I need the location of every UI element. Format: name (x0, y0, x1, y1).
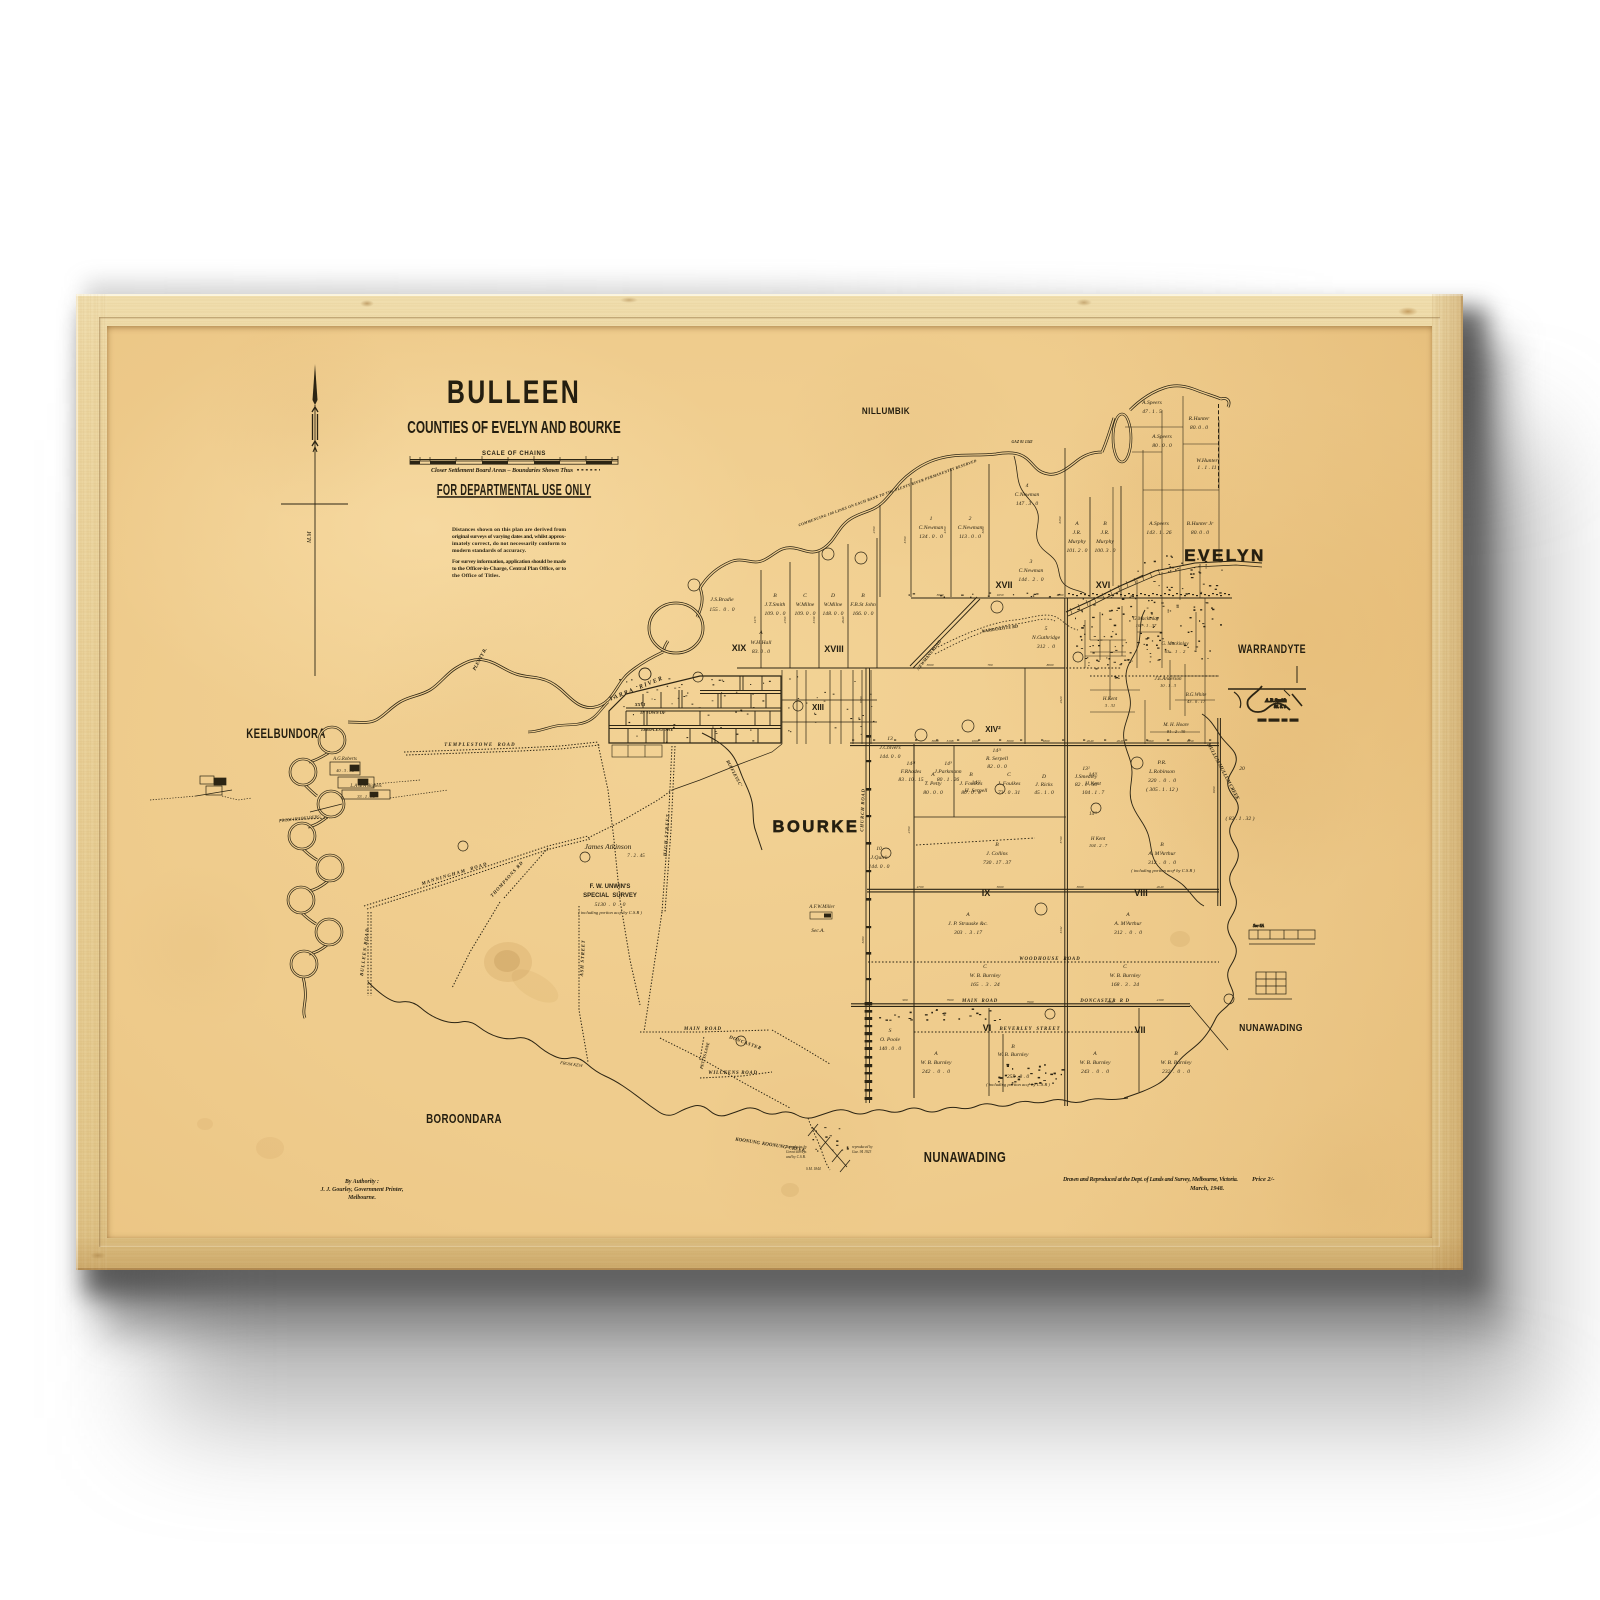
svg-text:3000: 3000 (937, 593, 944, 597)
svg-text:1650: 1650 (1212, 786, 1216, 793)
svg-text:XIV²: XIV² (985, 725, 1001, 734)
svg-text:DONCASTER R D: DONCASTER R D (1079, 999, 1130, 1004)
svg-text:700: 700 (987, 663, 992, 667)
svg-text:144. 0 . 0: 144. 0 . 0 (880, 754, 901, 760)
svg-text:A.Speers: A.Speers (1148, 521, 1169, 527)
svg-text:3000: 3000 (1007, 739, 1014, 743)
svg-text:1650: 1650 (997, 593, 1004, 597)
svg-text:144 . 2 . 0: 144 . 2 . 0 (1018, 577, 1043, 583)
svg-text:109. 0 . 0: 109. 0 . 0 (765, 611, 786, 617)
svg-text:to the Officer-in-Charge, Cent: to the Officer-in-Charge, Central Plan O… (452, 566, 566, 572)
svg-text:143 . 1 . 26: 143 . 1 . 26 (1146, 530, 1171, 536)
svg-text:( including portion acqⁿ by C.: ( including portion acqⁿ by C.S.B ) (578, 910, 642, 915)
svg-text:W.Milne: W.Milne (824, 602, 843, 608)
svg-text:148. 0 . 0: 148. 0 . 0 (823, 611, 844, 617)
svg-text:82 . 0 . 0: 82 . 0 . 0 (987, 764, 1007, 770)
svg-text:47 . 1 . 5: 47 . 1 . 5 (1142, 409, 1162, 415)
svg-text:7900: 7900 (1027, 1000, 1034, 1004)
svg-text:3198: 3198 (947, 739, 954, 743)
svg-text:Sec 6A: Sec 6A (1253, 923, 1265, 928)
svg-text:312 . 0 . 0: 312 . 0 . 0 (1147, 860, 1176, 866)
svg-text:168 . 3 . 24: 168 . 3 . 24 (1111, 982, 1139, 988)
svg-text:S.M. 1844: S.M. 1844 (806, 1167, 821, 1171)
svg-text:J.R.: J.R. (1073, 530, 1082, 536)
svg-text:104 . 1 . 7: 104 . 1 . 7 (1082, 790, 1105, 796)
svg-text:MAIN ROAD: MAIN ROAD (961, 999, 998, 1004)
svg-text:Closer Settlement Board Areas: Closer Settlement Board Areas – Boundari… (431, 467, 574, 474)
svg-text:Gaz. 94 1923: Gaz. 94 1923 (852, 1150, 871, 1154)
svg-text:BOROONDARA: BOROONDARA (426, 1113, 502, 1127)
svg-text:63 . 1 . 2: 63 . 1 . 2 (1165, 649, 1186, 654)
svg-text:MANNINGHAM ROAD: MANNINGHAM ROAD (420, 862, 488, 887)
svg-text:B: B (1174, 1051, 1178, 1057)
svg-text:C.Newman: C.Newman (958, 525, 983, 531)
svg-text:IX: IX (982, 888, 991, 898)
svg-text:WOODHOUSE ROAD: WOODHOUSE ROAD (1019, 957, 1080, 962)
svg-text:For survey information, applic: For survey information, application shou… (452, 559, 567, 565)
svg-text:7 . 2 . 45: 7 . 2 . 45 (627, 854, 645, 859)
svg-text:O. Poole: O. Poole (880, 1037, 900, 1043)
svg-text:reproduced by: reproduced by (852, 1145, 873, 1149)
svg-text:B.Hunter Jr: B.Hunter Jr (1187, 521, 1215, 527)
svg-text:FOR DEPARTMENTAL USE ONLY: FOR DEPARTMENTAL USE ONLY (437, 480, 591, 498)
svg-text:the Office of Titles.: the Office of Titles. (452, 573, 501, 579)
svg-text:WARRANDYTE RD: WARRANDYTE RD (981, 623, 1019, 633)
svg-text:80. 0. 0: 80. 0. 0 (1274, 704, 1286, 709)
svg-text:109. 0 . 0: 109. 0 . 0 (795, 611, 816, 617)
svg-text:COUNTIES OF EVELYN AND BOURKE: COUNTIES OF EVELYN AND BOURKE (407, 418, 620, 438)
svg-text:A: A (933, 1051, 938, 1057)
svg-text:2640: 2640 (1117, 739, 1124, 743)
svg-text:101. 2 . 0: 101. 2 . 0 (1067, 548, 1088, 554)
svg-text:A: A (1074, 521, 1079, 527)
svg-text:1800: 1800 (1043, 739, 1050, 743)
svg-text:83 . 10 . 15: 83 . 10 . 15 (898, 777, 923, 783)
svg-text:5: 5 (1045, 626, 1048, 632)
svg-text:W. B. Burnley: W. B. Burnley (1161, 1060, 1192, 1066)
svg-text:N.Guthridge: N.Guthridge (1031, 635, 1061, 641)
svg-text:80. 0 . 0: 80. 0 . 0 (1191, 530, 1209, 536)
svg-text:B: B (1011, 1044, 1015, 1050)
svg-text:modern standards of accuracy.: modern standards of accuracy. (452, 548, 527, 554)
svg-text:320 . 0 . 0: 320 . 0 . 0 (1147, 778, 1176, 784)
svg-text:A. M⁽Arthur: A. M⁽Arthur (1113, 920, 1142, 927)
svg-text:J.R.: J.R. (1101, 530, 1110, 536)
svg-text:312 . 0: 312 . 0 (1036, 644, 1055, 650)
svg-text:SCALE OF CHAINS: SCALE OF CHAINS (482, 451, 546, 457)
svg-text:J.Parkmann: J.Parkmann (934, 769, 961, 775)
svg-text:8000: 8000 (1047, 663, 1054, 667)
svg-text:J.S.Bradie: J.S.Bradie (710, 597, 734, 603)
svg-text:W. B. Burnley: W. B. Burnley (1110, 973, 1141, 979)
svg-text:73 . 0 . 31: 73 . 0 . 31 (998, 790, 1021, 796)
svg-text:43 . 0 . 17: 43 . 0 . 17 (1187, 699, 1206, 704)
svg-text:2640: 2640 (841, 616, 845, 623)
svg-text:Drawn and Reproduced at the De: Drawn and Reproduced at the Dept. of Lan… (1062, 1177, 1239, 1183)
svg-text:FROM HEIDELBERG: FROM HEIDELBERG (278, 814, 322, 824)
svg-text:5280: 5280 (861, 936, 865, 943)
svg-text:TEMPLESTOWE: TEMPLESTOWE (641, 727, 674, 732)
svg-text:( 305 . 1 . 12 ): ( 305 . 1 . 12 ) (1146, 786, 1178, 793)
svg-text:W.Milne: W.Milne (796, 602, 815, 608)
svg-text:F.B.St John: F.B.St John (849, 602, 876, 608)
svg-text:232 . 0 . 0: 232 . 0 . 0 (1162, 1069, 1190, 1075)
svg-text:F. W. UNWIN'S: F. W. UNWIN'S (590, 884, 631, 890)
svg-text:F.Rhodes: F.Rhodes (900, 769, 922, 775)
svg-text:KEELBUNDORA: KEELBUNDORA (246, 727, 326, 742)
svg-text:3: 3 (1029, 559, 1033, 565)
svg-text:C: C (1007, 772, 1011, 778)
svg-text:J. Collins: J. Collins (986, 851, 1007, 857)
svg-text:1 . 1 . 11: 1 . 1 . 11 (1197, 465, 1216, 471)
svg-text:M.M: M.M (307, 531, 313, 544)
svg-text:Murphy: Murphy (1095, 539, 1114, 545)
svg-text:J.T.Smith: J.T.Smith (765, 602, 786, 608)
svg-text:L.Robinson: L.Robinson (1148, 769, 1175, 775)
svg-text:Price 2/-: Price 2/- (1252, 1176, 1275, 1183)
svg-text:82 . 1 . 30: 82 . 1 . 30 (1075, 782, 1098, 788)
svg-text:243 . 0 . 0: 243 . 0 . 0 (1081, 1069, 1109, 1075)
svg-text:3000: 3000 (927, 663, 934, 667)
svg-text:WARRANDYTE: WARRANDYTE (1238, 644, 1306, 656)
svg-text:BULLEEN ROAD: BULLEEN ROAD (360, 927, 371, 977)
svg-text:Distances shown on this plan a: Distances shown on this plan are derived… (452, 527, 566, 533)
svg-text:W.Hunter: W.Hunter (1196, 458, 1218, 464)
svg-text:and by C.S.B.: and by C.S.B. (786, 1155, 806, 1159)
svg-text:B: B (1103, 521, 1107, 527)
svg-text:80. 0 . 0: 80. 0 . 0 (1190, 425, 1208, 431)
svg-text:165 . 3 . 24: 165 . 3 . 24 (970, 982, 1000, 988)
svg-text:166. 0 . 0: 166. 0 . 0 (853, 611, 874, 617)
svg-text:J. J. Gourley, Government Prin: J. J. Gourley, Government Printer, (320, 1187, 404, 1193)
svg-text:A: A (1092, 1051, 1097, 1057)
svg-text:W. B. Burnley: W. B. Burnley (1080, 1060, 1111, 1066)
svg-text:45 . 1 . 0: 45 . 1 . 0 (1034, 790, 1054, 796)
svg-text:XIX: XIX (732, 643, 747, 653)
svg-text:MAIN ROAD: MAIN ROAD (683, 1027, 722, 1032)
svg-text:XVIII: XVIII (824, 644, 844, 654)
svg-text:2640: 2640 (1087, 739, 1094, 743)
svg-text:B.G.White: B.G.White (1186, 693, 1208, 698)
svg-text:2153: 2153 (783, 616, 787, 623)
svg-text:1: 1 (930, 516, 933, 522)
svg-text:33 . 1 . 30: 33 . 1 . 30 (357, 794, 375, 799)
svg-text:80 . 1 . 26: 80 . 1 . 26 (937, 777, 960, 783)
svg-text:HIGH STREET: HIGH STREET (663, 813, 671, 857)
svg-text:C.Newman: C.Newman (1019, 568, 1044, 574)
svg-text:G. Mackinlay: G. Mackinlay (1161, 642, 1189, 647)
svg-text:H Kent: H Kent (1090, 837, 1106, 842)
svg-text:imately correct, do not necess: imately correct, do not necessarily conf… (452, 541, 566, 547)
svg-text:P.R.: P.R. (1157, 760, 1167, 766)
svg-text:3000: 3000 (1077, 885, 1084, 889)
svg-text:5130 . 0 . 0: 5130 . 0 . 0 (595, 902, 626, 908)
svg-text:10 . 1 . 3: 10 . 1 . 3 (1160, 683, 1177, 688)
svg-text:A.F.W.Miller: A.F.W.Miller (808, 905, 834, 910)
svg-text:J.E.Anderson: J.E.Anderson (1155, 677, 1182, 682)
svg-text:100. 3 . 0: 100. 3 . 0 (1095, 548, 1116, 554)
svg-text:3 . 31: 3 . 31 (1105, 703, 1115, 708)
svg-text:IN TOWN OF: IN TOWN OF (639, 710, 666, 715)
svg-text:81 . 2 . 30: 81 . 2 . 30 (1167, 729, 1186, 734)
svg-text:312 . 0 . 0: 312 . 0 . 0 (1113, 930, 1142, 936)
svg-text:5280: 5280 (981, 526, 985, 533)
svg-text:W.H.Hall: W.H.Hall (751, 640, 772, 646)
svg-text:FROM KEW: FROM KEW (559, 1060, 583, 1068)
svg-text:BULLEEN: BULLEEN (447, 375, 581, 411)
svg-text:original surveys of varying da: original surveys of varying dates and, w… (452, 534, 566, 540)
svg-text:14²¹: 14²¹ (993, 748, 1002, 754)
svg-text:Melbourne.: Melbourne. (347, 1195, 376, 1201)
svg-text:VII: VII (1134, 1025, 1145, 1035)
svg-text:By Authority :: By Authority : (344, 1179, 379, 1185)
svg-text:40 . 3 . 36: 40 . 3 . 36 (336, 768, 354, 773)
svg-text:14²²: 14²² (972, 780, 981, 786)
svg-text:NILLUMBIK: NILLUMBIK (862, 405, 910, 416)
svg-text:J.Smedley: J.Smedley (1075, 774, 1098, 780)
svg-text:L.A & A Bighels: L.A & A Bighels (349, 784, 381, 789)
svg-text:VIII: VIII (1134, 888, 1148, 898)
svg-text:A: A (758, 630, 763, 636)
svg-text:H.Kent: H.Kent (1102, 697, 1118, 702)
svg-text:B: B (995, 842, 999, 848)
svg-text:2640: 2640 (1157, 885, 1164, 889)
svg-text:2100: 2100 (1157, 998, 1164, 1002)
svg-text:D: D (830, 593, 835, 599)
svg-text:900: 900 (902, 998, 907, 1002)
svg-text:J. Ricks: J. Ricks (1035, 782, 1052, 788)
svg-text:Sec.A.: Sec.A. (811, 928, 824, 934)
svg-text:B: B (1160, 842, 1164, 848)
svg-text:BEVERLEY STREET: BEVERLEY STREET (998, 1027, 1060, 1032)
svg-text:1473: 1473 (753, 616, 757, 623)
svg-text:J. P. Strauske &c.: J. P. Strauske &c. (948, 921, 988, 927)
svg-text:A.G.Roberts: A.G.Roberts (332, 757, 357, 762)
svg-text:XXVI: XXVI (634, 702, 646, 707)
svg-text:5000: 5000 (997, 885, 1004, 889)
svg-text:242 . 0 . 0: 242 . 0 . 0 (922, 1069, 950, 1075)
svg-text:1650: 1650 (859, 696, 863, 703)
svg-text:2320: 2320 (1059, 696, 1063, 703)
svg-text:W. B. Burnley: W. B. Burnley (970, 973, 1001, 979)
svg-text:C.Newman: C.Newman (1015, 492, 1040, 498)
svg-text:80 . 0 . 0: 80 . 0 . 0 (923, 790, 943, 796)
svg-text:James Atkinson: James Atkinson (585, 842, 632, 851)
svg-text:NUNAWADING: NUNAWADING (1239, 1022, 1303, 1034)
svg-text:2150: 2150 (907, 826, 911, 833)
svg-text:113 . 0 . 0: 113 . 0 . 0 (959, 534, 981, 540)
svg-text:C: C (983, 964, 987, 970)
svg-text:BOURKE: BOURKE (772, 818, 859, 836)
svg-text:XVII: XVII (995, 580, 1012, 590)
svg-text:A: A (965, 912, 970, 918)
svg-text:2: 2 (969, 516, 972, 522)
svg-text:March, 1948.: March, 1948. (1189, 1185, 1225, 1192)
svg-text:ASH STREET: ASH STREET (580, 939, 587, 977)
svg-text:MULLUM MULLUM CREEK: MULLUM MULLUM CREEK (1205, 742, 1240, 802)
svg-text:6150: 6150 (1058, 516, 1062, 523)
svg-text:W. B. Burnley: W. B. Burnley (998, 1052, 1029, 1058)
svg-text:144. 0 . 0: 144. 0 . 0 (869, 864, 890, 870)
svg-text:4: 4 (1026, 483, 1029, 489)
svg-text:SPECIAL SURVEY: SPECIAL SURVEY (583, 893, 637, 899)
svg-text:H. Serpell: H. Serpell (964, 788, 988, 794)
svg-text:5700: 5700 (1059, 836, 1063, 843)
svg-text:S: S (889, 1028, 892, 1034)
svg-text:C.Newman: C.Newman (919, 525, 944, 531)
svg-text:C: C (803, 593, 807, 599)
svg-text:155 . 0 . 0: 155 . 0 . 0 (709, 607, 734, 613)
svg-text:83. 0 . 0: 83. 0 . 0 (752, 649, 770, 655)
svg-text:W. B. Burnley: W. B. Burnley (921, 1060, 952, 1066)
svg-text:730 . 17 . 37: 730 . 17 . 37 (983, 860, 1011, 866)
svg-text:7960: 7960 (1107, 1000, 1114, 1004)
svg-text:( 82 . 1 . 32 ): ( 82 . 1 . 32 ) (1226, 815, 1255, 822)
svg-text:M. H. Hoare: M. H. Hoare (1162, 723, 1189, 728)
svg-text:XIII: XIII (812, 703, 824, 712)
svg-text:1000: 1000 (972, 739, 979, 743)
svg-text:13: 13 (887, 736, 893, 742)
svg-text:134 . 0 . 0: 134 . 0 . 0 (919, 534, 943, 540)
svg-text:3139: 3139 (812, 616, 816, 623)
svg-text:B: B (969, 772, 973, 778)
svg-text:3150: 3150 (903, 536, 907, 543)
svg-text:D: D (1041, 774, 1046, 780)
svg-text:A: A (1125, 912, 1130, 918)
svg-text:4150: 4150 (943, 526, 947, 533)
svg-text:NUNAWADING: NUNAWADING (924, 1149, 1006, 1166)
svg-text:TEMPLESTOWE ROAD: TEMPLESTOWE ROAD (444, 743, 516, 748)
svg-text:13²: 13² (1082, 766, 1090, 772)
svg-text:C: C (1123, 964, 1127, 970)
svg-text:140 . 0 . 0: 140 . 0 . 0 (879, 1046, 902, 1052)
svg-text:4700: 4700 (917, 885, 924, 889)
svg-text:A.Speers: A.Speers (1151, 434, 1172, 440)
svg-text:3132: 3132 (1059, 926, 1063, 933)
svg-text:B: B (773, 593, 777, 599)
svg-text:R.Hunter: R.Hunter (1188, 416, 1210, 422)
svg-text:R. Serpell: R. Serpell (985, 756, 1009, 762)
svg-text:COMMENCING 100 LINKS ON EACH B: COMMENCING 100 LINKS ON EACH BANK TO THE… (798, 459, 977, 528)
svg-text:2150: 2150 (872, 526, 876, 533)
svg-text:20: 20 (1239, 766, 1245, 772)
svg-text:147 . 3 . 0: 147 . 3 . 0 (1016, 501, 1039, 507)
svg-text:( including portion acqⁿ by C.: ( including portion acqⁿ by C.S.B ) (1131, 868, 1195, 873)
svg-text:GAZ 81 1342: GAZ 81 1342 (1012, 440, 1033, 444)
svg-text:XVI: XVI (1096, 580, 1111, 590)
svg-text:14³: 14³ (944, 761, 952, 767)
svg-text:14²¹: 14²¹ (907, 761, 916, 767)
svg-text:303 . 3 . 17: 303 . 3 . 17 (953, 930, 982, 936)
svg-text:J.Chivers: J.Chivers (879, 745, 900, 751)
svg-text:WILCKENS ROAD: WILCKENS ROAD (708, 1071, 757, 1076)
svg-text:Murphy: Murphy (1067, 539, 1086, 545)
svg-text:VI: VI (983, 1023, 992, 1033)
svg-text:104 . 2 . 7: 104 . 2 . 7 (1089, 843, 1108, 848)
svg-text:THOMPSONS RD: THOMPSONS RD (490, 861, 525, 899)
svg-text:B: B (861, 593, 865, 599)
svg-text:A.Speers: A.Speers (1141, 400, 1162, 406)
svg-text:A. M⁽Arthur: A. M⁽Arthur (1147, 850, 1176, 857)
svg-text:7900: 7900 (947, 998, 954, 1002)
